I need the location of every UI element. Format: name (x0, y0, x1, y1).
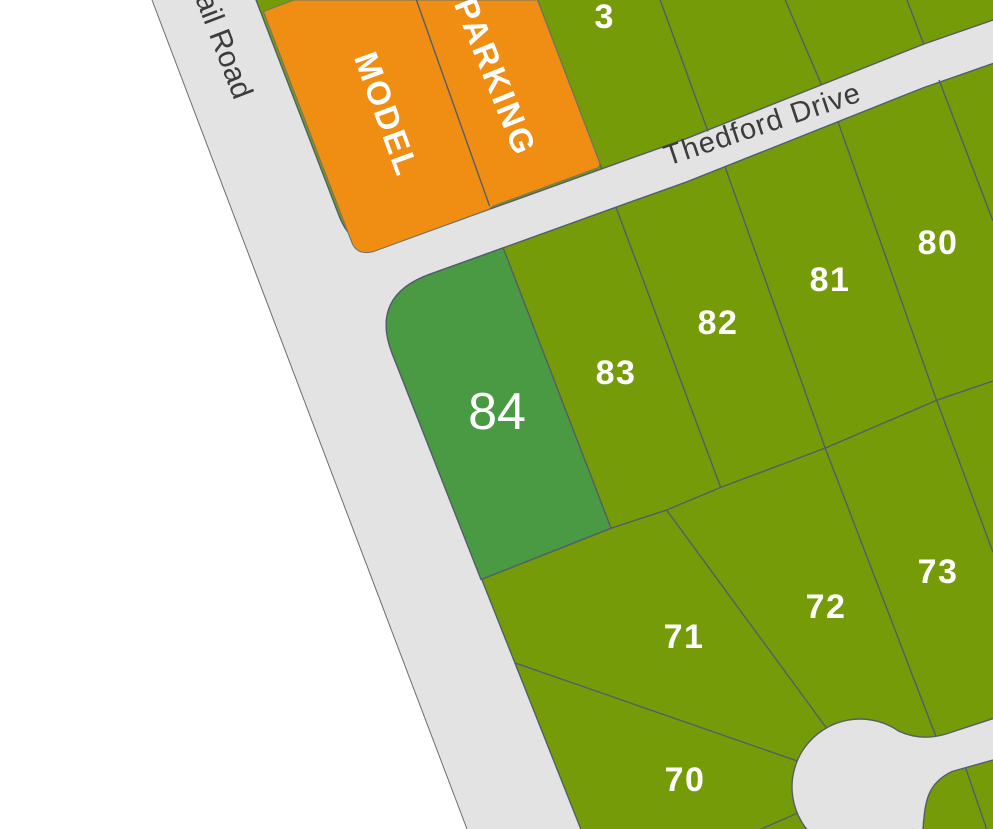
svg-text:83: 83 (596, 354, 637, 392)
svg-text:3: 3 (595, 0, 614, 36)
svg-text:70: 70 (665, 761, 706, 799)
svg-text:82: 82 (698, 304, 739, 342)
svg-text:80: 80 (918, 224, 959, 262)
svg-text:81: 81 (810, 261, 851, 299)
svg-text:71: 71 (664, 618, 705, 656)
svg-text:72: 72 (806, 588, 847, 626)
svg-text:84: 84 (468, 383, 526, 441)
svg-text:73: 73 (918, 553, 959, 591)
